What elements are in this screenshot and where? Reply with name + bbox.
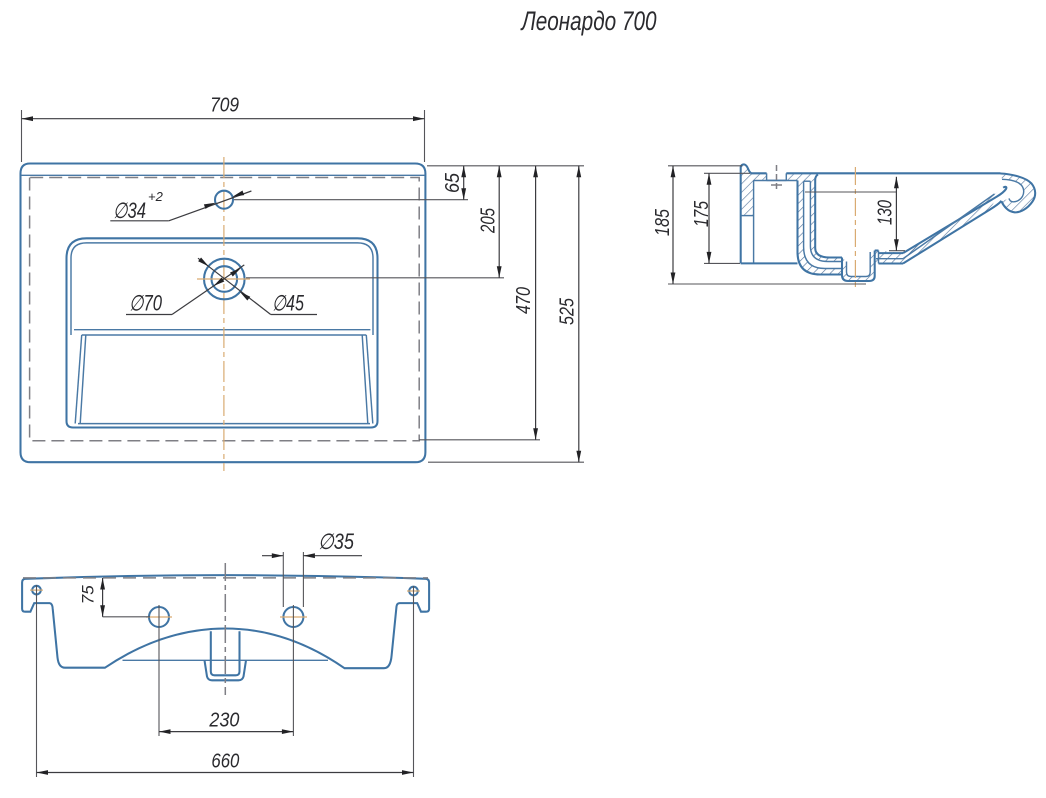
svg-text:∅70: ∅70 [129, 291, 163, 316]
svg-text:75: 75 [79, 585, 98, 605]
svg-text:+2: +2 [148, 189, 164, 204]
svg-text:Леонардо 700: Леонардо 700 [520, 6, 657, 36]
svg-text:660: 660 [211, 751, 239, 773]
svg-text:130: 130 [875, 200, 897, 225]
svg-text:185: 185 [652, 208, 674, 236]
svg-text:470: 470 [513, 287, 535, 314]
svg-text:65: 65 [442, 172, 464, 193]
svg-text:525: 525 [557, 297, 579, 325]
svg-text:709: 709 [210, 95, 239, 117]
svg-text:230: 230 [209, 710, 240, 732]
svg-text:205: 205 [478, 207, 500, 233]
svg-text:∅35: ∅35 [318, 529, 355, 554]
svg-text:∅45: ∅45 [272, 291, 305, 316]
svg-text:175: 175 [691, 200, 713, 227]
svg-text:∅34: ∅34 [113, 198, 146, 223]
